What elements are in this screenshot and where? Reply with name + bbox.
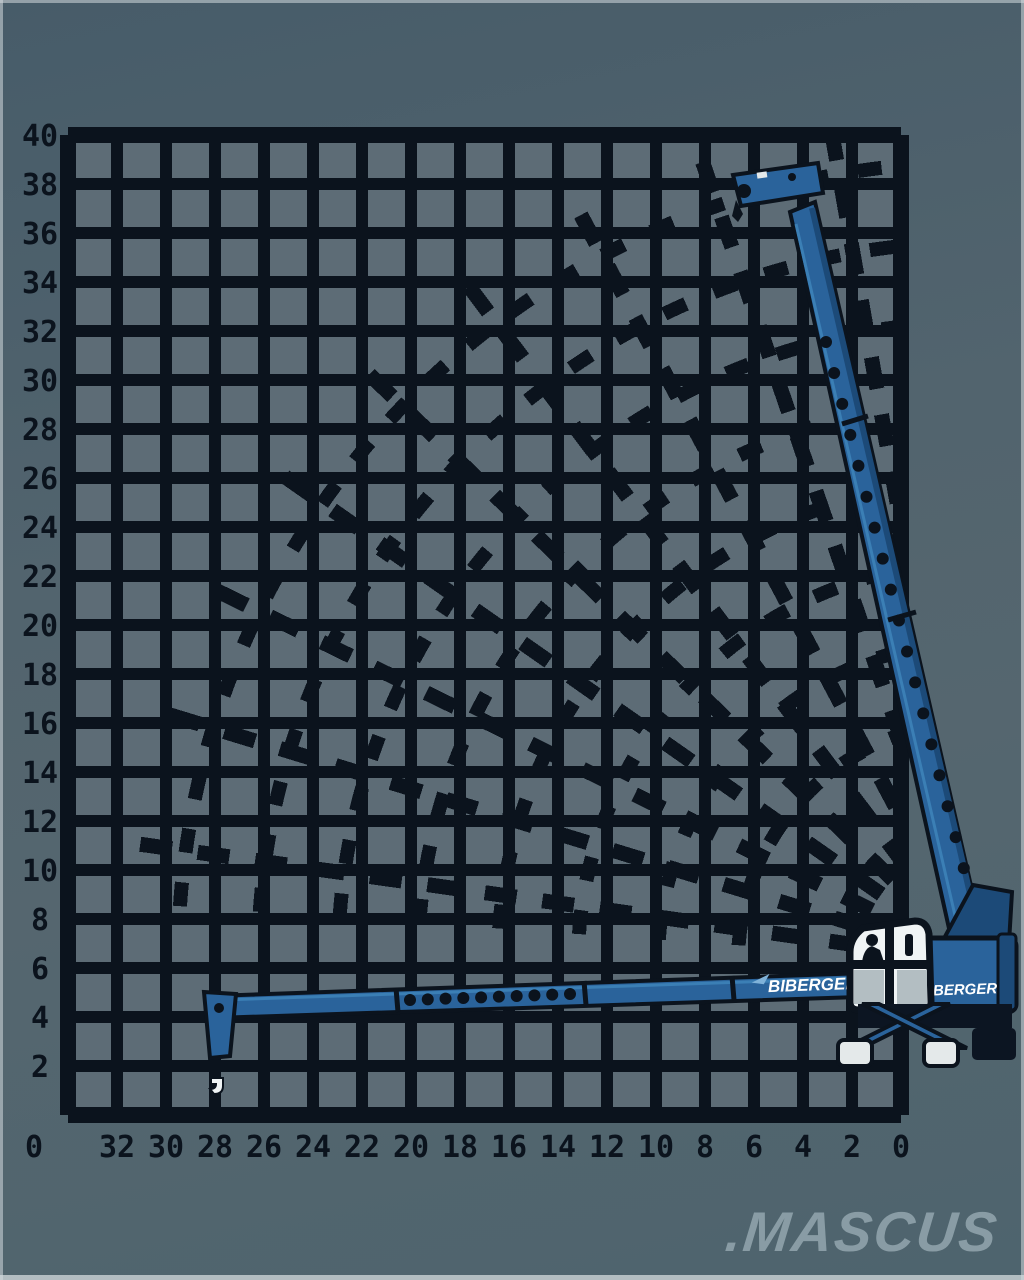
boom-hole — [909, 676, 921, 688]
grid-lines — [68, 135, 901, 1115]
image-border — [0, 0, 1024, 3]
boom-hole — [528, 989, 540, 1001]
x-axis-labels: 32302826242220181614121086420 — [99, 1130, 910, 1165]
y-tick-label: 18 — [22, 658, 58, 693]
cab-lower-pane — [897, 970, 927, 1004]
crane-cab — [850, 921, 931, 1010]
boom-hole — [925, 738, 937, 750]
boom-hole — [493, 991, 505, 1003]
x-tick-label: 20 — [393, 1130, 429, 1165]
boom-hole — [836, 398, 848, 410]
x-tick-label: 30 — [148, 1130, 184, 1165]
y-tick-label: 22 — [22, 560, 58, 595]
carrier-block — [972, 1028, 1016, 1060]
outrigger-pad — [838, 1040, 872, 1066]
y-tick-label: 36 — [22, 217, 58, 252]
boom-hole — [885, 584, 897, 596]
y-tick-label: 28 — [22, 413, 58, 448]
boom-seam — [732, 976, 734, 1000]
boom-hole — [546, 989, 558, 1001]
boom-hole — [852, 460, 864, 472]
origin-label: 0 — [25, 1130, 43, 1165]
x-tick-label: 14 — [540, 1130, 576, 1165]
diagram-image: 4038363432302826242220181614121086420323… — [0, 0, 1024, 1280]
boom-hole — [958, 862, 970, 874]
boom-hole — [901, 645, 913, 657]
y-tick-label: 34 — [22, 266, 58, 301]
x-tick-label: 18 — [442, 1130, 478, 1165]
y-tick-label: 4 — [31, 1001, 49, 1036]
x-tick-label: 24 — [295, 1130, 331, 1165]
x-tick-label: 32 — [99, 1130, 135, 1165]
x-tick-label: 26 — [246, 1130, 282, 1165]
y-tick-label: 16 — [22, 707, 58, 742]
x-tick-label: 10 — [638, 1130, 674, 1165]
boom-seam — [396, 988, 398, 1012]
mascus-watermark: .MASCUS — [722, 1199, 1001, 1264]
boom-hole — [950, 831, 962, 843]
boom-hole — [844, 429, 856, 441]
x-tick-label: 28 — [197, 1130, 233, 1165]
x-tick-label: 16 — [491, 1130, 527, 1165]
image-border — [0, 1275, 1024, 1280]
head-bolt — [788, 173, 796, 181]
boom-hole — [893, 615, 905, 627]
y-tick-label: 8 — [31, 903, 49, 938]
y-tick-label: 6 — [31, 952, 49, 987]
image-border — [0, 0, 3, 1280]
boom-seam — [584, 981, 586, 1005]
y-tick-label: 10 — [22, 854, 58, 889]
y-tick-label: 40 — [22, 119, 58, 154]
boom-hole — [457, 992, 469, 1004]
x-tick-label: 2 — [843, 1130, 861, 1165]
x-tick-label: 22 — [344, 1130, 380, 1165]
y-tick-label: 26 — [22, 462, 58, 497]
x-tick-label: 6 — [745, 1130, 763, 1165]
x-tick-label: 4 — [794, 1130, 812, 1165]
boom-hole — [933, 769, 945, 781]
boom-hole — [404, 994, 416, 1006]
cab-seat — [905, 934, 913, 956]
y-tick-label: 38 — [22, 168, 58, 203]
boom-logo-text: BIBERGER — [768, 974, 859, 996]
y-tick-label: 2 — [31, 1050, 49, 1085]
x-tick-label: 12 — [589, 1130, 625, 1165]
boom-hole — [564, 988, 576, 1000]
y-tick-label: 14 — [22, 756, 58, 791]
y-axis-labels: 4038363432302826242220181614121086420 — [22, 119, 58, 1165]
y-tick-label: 30 — [22, 364, 58, 399]
head-sheave — [737, 184, 751, 198]
horizontal-boom-head — [204, 992, 236, 1058]
boom-hole — [511, 990, 523, 1002]
x-tick-label: 8 — [696, 1130, 714, 1165]
cab-window-frame — [851, 960, 929, 969]
boom-hole — [869, 522, 881, 534]
boom-hole — [877, 553, 889, 565]
y-tick-label: 24 — [22, 511, 58, 546]
y-tick-label: 32 — [22, 315, 58, 350]
boom-hole — [828, 367, 840, 379]
boom-hole — [422, 993, 434, 1005]
counterweight — [998, 934, 1016, 1010]
outrigger-pad — [924, 1040, 958, 1066]
boom-hole — [942, 800, 954, 812]
y-tick-label: 12 — [22, 805, 58, 840]
boom-hole — [861, 491, 873, 503]
cab-lower-pane — [854, 970, 884, 1004]
boom-hole — [820, 336, 832, 348]
boom-sheave — [214, 1003, 224, 1013]
boom-hole — [475, 991, 487, 1003]
operator-silhouette — [866, 934, 878, 946]
x-tick-label: 0 — [892, 1130, 910, 1165]
boom-hole — [440, 993, 452, 1005]
boom-hole — [917, 707, 929, 719]
y-tick-label: 20 — [22, 609, 58, 644]
